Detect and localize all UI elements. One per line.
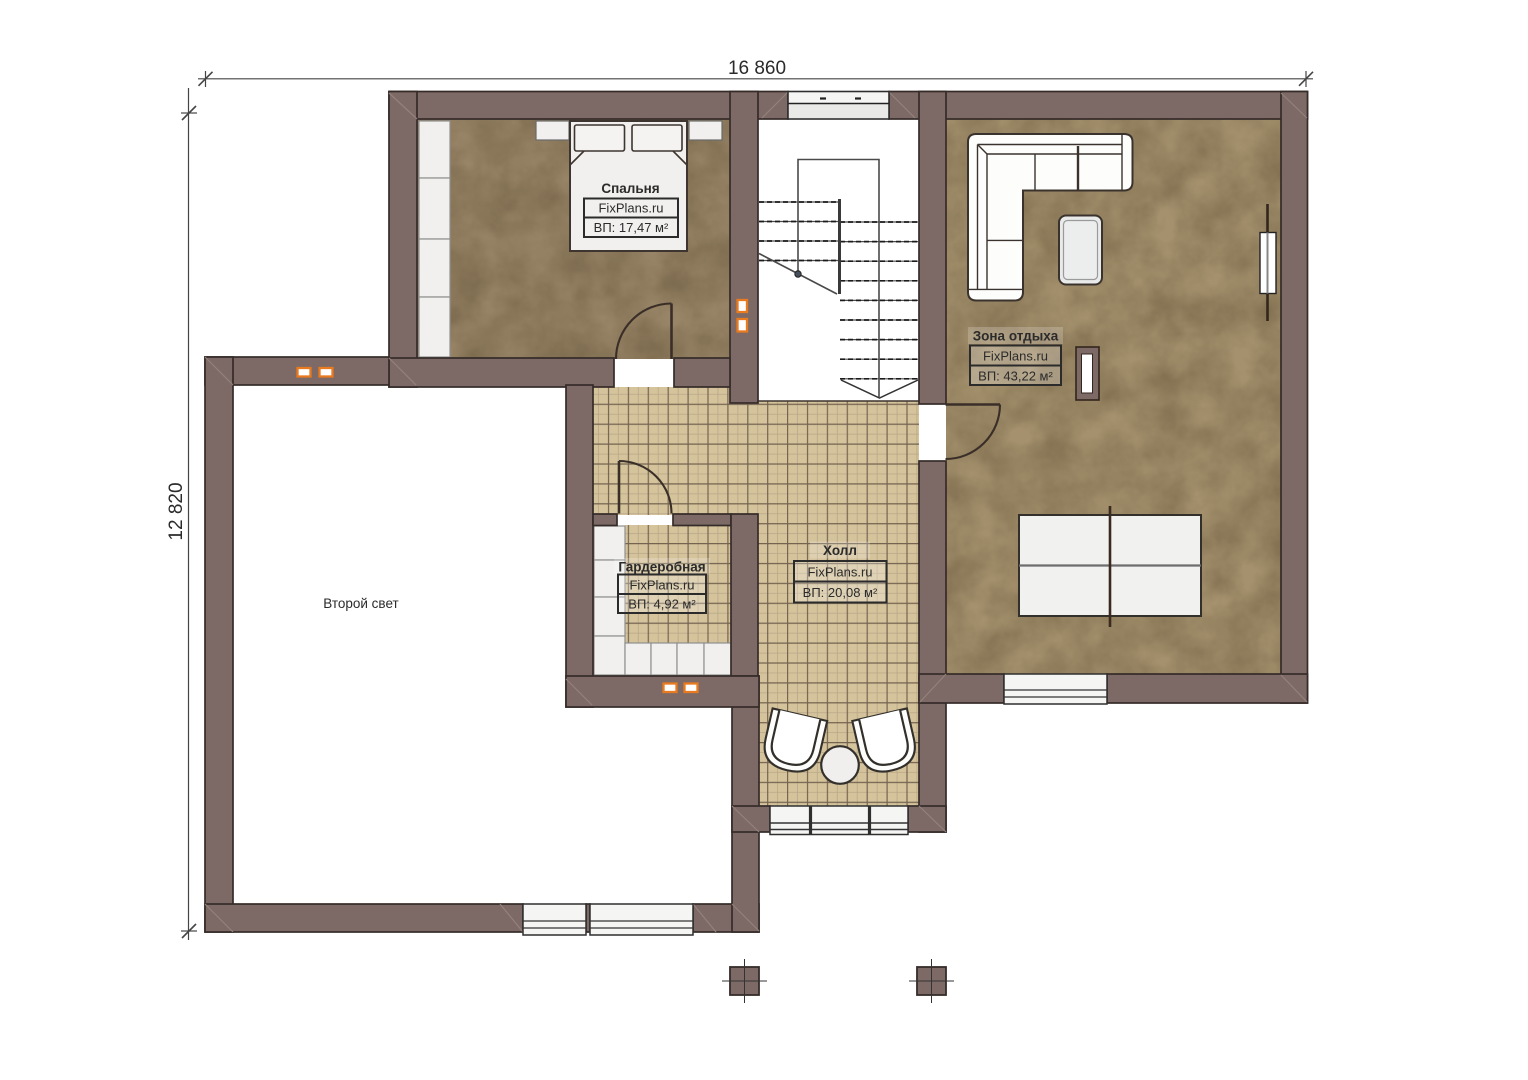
svg-text:16 860: 16 860 [728,58,786,79]
svg-text:12 820: 12 820 [166,482,187,540]
svg-text:ВП: 17,47 м²: ВП: 17,47 м² [594,220,669,235]
svg-text:ВП: 4,92 м²: ВП: 4,92 м² [628,597,696,612]
svg-text:FixPlans.ru: FixPlans.ru [629,578,694,593]
svg-text:Зона отдыха: Зона отдыха [973,329,1059,344]
svg-text:Гардеробная: Гардеробная [618,560,705,575]
svg-text:FixPlans.ru: FixPlans.ru [807,565,872,580]
svg-text:FixPlans.ru: FixPlans.ru [598,201,663,216]
svg-text:ВП: 20,08 м²: ВП: 20,08 м² [803,585,878,600]
svg-text:ВП: 43,22 м²: ВП: 43,22 м² [978,369,1053,384]
svg-text:Холл: Холл [823,543,857,558]
svg-text:Второй свет: Второй свет [323,596,398,611]
svg-text:Спальня: Спальня [601,181,659,196]
svg-text:FixPlans.ru: FixPlans.ru [983,349,1048,364]
